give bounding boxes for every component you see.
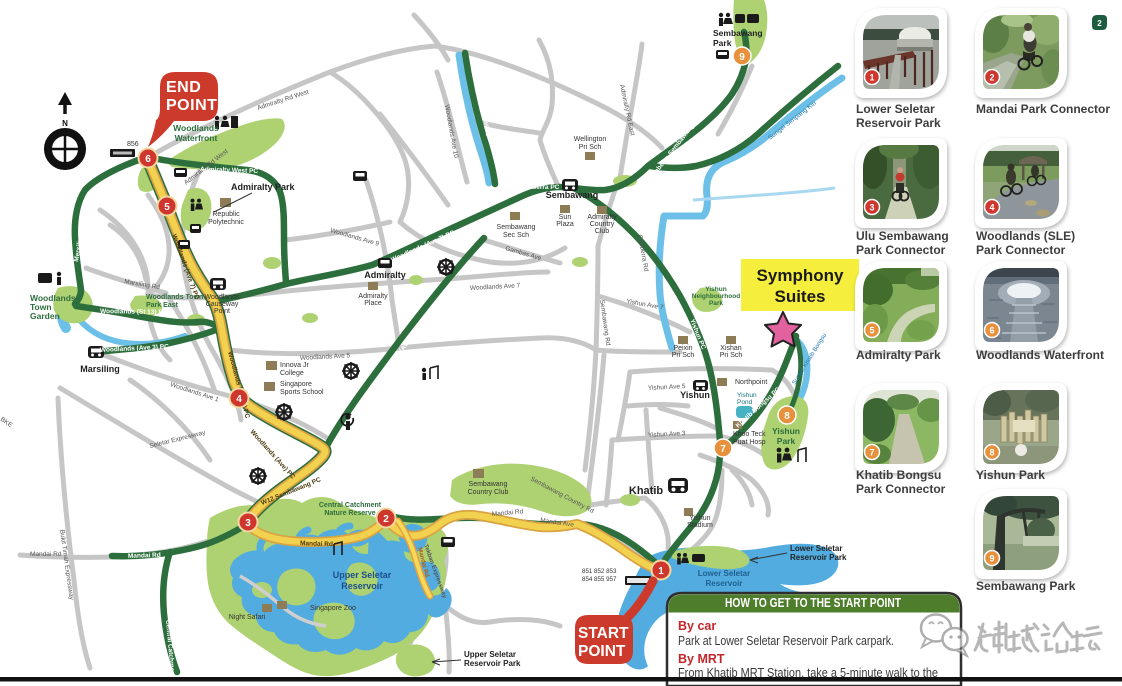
svg-text:START: START bbox=[578, 625, 629, 642]
svg-text:Woodlands: Woodlands bbox=[173, 123, 219, 133]
svg-text:Mandai Rd: Mandai Rd bbox=[128, 552, 161, 560]
svg-text:Nature Reserve: Nature Reserve bbox=[324, 510, 375, 517]
svg-text:Park Connector: Park Connector bbox=[856, 243, 946, 257]
svg-text:Woodlands (SLE): Woodlands (SLE) bbox=[976, 229, 1075, 243]
svg-text:Admiralty Park: Admiralty Park bbox=[231, 182, 296, 192]
svg-text:Admiralty: Admiralty bbox=[358, 293, 388, 300]
svg-text:Khatib: Khatib bbox=[629, 485, 664, 497]
svg-text:Reservoir Park: Reservoir Park bbox=[856, 116, 941, 130]
svg-text:Park Connector: Park Connector bbox=[856, 482, 946, 496]
svg-text:4: 4 bbox=[989, 203, 994, 213]
svg-text:Pond: Pond bbox=[737, 399, 753, 406]
svg-text:Reservoir: Reservoir bbox=[341, 581, 383, 591]
svg-text:5: 5 bbox=[164, 202, 170, 213]
svg-text:Stadium: Stadium bbox=[687, 522, 713, 529]
svg-text:Sembawang: Sembawang bbox=[497, 224, 536, 231]
svg-text:Yishun Park: Yishun Park bbox=[976, 468, 1045, 482]
svg-text:Woodlands: Woodlands bbox=[205, 294, 240, 301]
svg-text:5: 5 bbox=[869, 326, 874, 336]
svg-text:8: 8 bbox=[784, 411, 790, 422]
svg-text:4: 4 bbox=[236, 394, 242, 405]
svg-text:Sembawang: Sembawang bbox=[469, 481, 508, 488]
svg-text:END: END bbox=[166, 79, 201, 96]
svg-text:Waterfront: Waterfront bbox=[175, 133, 218, 143]
svg-text:Northpoint: Northpoint bbox=[735, 379, 767, 386]
svg-text:Mandai Rd: Mandai Rd bbox=[300, 540, 333, 548]
svg-text:Ulu Sembawang: Ulu Sembawang bbox=[856, 229, 949, 243]
svg-text:By MRT: By MRT bbox=[678, 652, 725, 666]
svg-text:Central Catchment: Central Catchment bbox=[319, 502, 382, 509]
svg-text:Garden: Garden bbox=[30, 311, 60, 321]
svg-text:851 852 853: 851 852 853 bbox=[582, 568, 617, 575]
svg-text:Sembawang: Sembawang bbox=[713, 28, 763, 38]
svg-text:9: 9 bbox=[989, 554, 994, 564]
svg-text:2: 2 bbox=[383, 514, 389, 525]
svg-text:POINT: POINT bbox=[578, 643, 626, 660]
svg-text:Reservoir Park: Reservoir Park bbox=[790, 553, 847, 562]
svg-text:Night Safari: Night Safari bbox=[229, 614, 266, 621]
svg-text:Upper Seletar: Upper Seletar bbox=[464, 650, 516, 659]
svg-text:Point: Point bbox=[214, 308, 230, 315]
svg-text:Innova Jr: Innova Jr bbox=[280, 362, 309, 369]
svg-text:POINT: POINT bbox=[166, 97, 217, 114]
svg-text:2: 2 bbox=[1097, 19, 1102, 28]
svg-text:Symphony: Symphony bbox=[757, 266, 844, 285]
svg-text:Singapore: Singapore bbox=[280, 381, 312, 388]
svg-text:3: 3 bbox=[245, 518, 251, 529]
svg-text:Republic: Republic bbox=[212, 211, 240, 218]
svg-text:Polytechnic: Polytechnic bbox=[208, 219, 244, 226]
svg-text:9: 9 bbox=[739, 52, 745, 63]
svg-text:Khatib Bongsu: Khatib Bongsu bbox=[856, 468, 941, 482]
svg-text:Reservoir Park: Reservoir Park bbox=[464, 659, 521, 668]
svg-text:Woodlands Waterfront: Woodlands Waterfront bbox=[976, 348, 1104, 362]
svg-text:1: 1 bbox=[658, 566, 664, 577]
svg-text:854 855 957: 854 855 957 bbox=[582, 576, 617, 583]
svg-text:Country: Country bbox=[590, 221, 615, 228]
svg-text:Wellington: Wellington bbox=[574, 136, 607, 143]
svg-text:Plaza: Plaza bbox=[556, 221, 574, 228]
svg-text:Lower Seletar: Lower Seletar bbox=[698, 569, 750, 578]
svg-text:7: 7 bbox=[869, 448, 874, 458]
svg-text:3: 3 bbox=[869, 203, 874, 213]
svg-text:Park: Park bbox=[777, 436, 796, 446]
svg-text:2: 2 bbox=[989, 73, 994, 83]
svg-text:Canberra PC: Canberra PC bbox=[520, 184, 560, 191]
svg-text:Sembawang: Sembawang bbox=[546, 190, 599, 200]
svg-text:6: 6 bbox=[145, 154, 151, 165]
svg-text:Woodlands (St 13) PC: Woodlands (St 13) PC bbox=[100, 308, 168, 316]
svg-text:Suites: Suites bbox=[774, 287, 825, 306]
svg-text:Yishun: Yishun bbox=[705, 286, 726, 293]
svg-text:Admiralty: Admiralty bbox=[587, 214, 617, 221]
svg-text:8: 8 bbox=[989, 448, 994, 458]
svg-text:Club: Club bbox=[595, 228, 610, 235]
svg-text:Pri Sch: Pri Sch bbox=[579, 144, 602, 151]
svg-text:Park at Lower Seletar Reservoi: Park at Lower Seletar Reservoir Park car… bbox=[678, 634, 894, 648]
svg-text:Country Club: Country Club bbox=[468, 489, 509, 496]
svg-text:856: 856 bbox=[127, 141, 139, 148]
svg-text:Puat Hosp: Puat Hosp bbox=[733, 439, 766, 446]
svg-text:Admiralty Park: Admiralty Park bbox=[856, 348, 941, 362]
svg-text:Marsiling: Marsiling bbox=[80, 364, 120, 374]
svg-text:Yishun: Yishun bbox=[737, 392, 757, 399]
svg-text:Mandai Rd: Mandai Rd bbox=[30, 551, 62, 558]
svg-text:Reservoir: Reservoir bbox=[706, 579, 743, 588]
svg-text:Xishan: Xishan bbox=[720, 345, 742, 352]
svg-text:Singapore Zoo: Singapore Zoo bbox=[310, 605, 356, 612]
svg-text:1: 1 bbox=[869, 73, 874, 83]
svg-text:6: 6 bbox=[989, 326, 994, 336]
svg-text:Admiralty: Admiralty bbox=[364, 270, 406, 280]
svg-text:N: N bbox=[62, 119, 68, 128]
svg-text:Park: Park bbox=[713, 38, 732, 48]
svg-text:Lower Seletar: Lower Seletar bbox=[790, 544, 842, 553]
svg-text:Sembawang Park: Sembawang Park bbox=[976, 579, 1076, 593]
svg-text:HOW TO GET TO THE START POINT: HOW TO GET TO THE START POINT bbox=[725, 596, 901, 610]
svg-text:Pri Sch: Pri Sch bbox=[672, 352, 695, 359]
svg-text:Sports School: Sports School bbox=[280, 389, 324, 396]
svg-text:College: College bbox=[280, 370, 304, 377]
svg-text:Yishun: Yishun bbox=[689, 515, 710, 522]
svg-text:Park Connector: Park Connector bbox=[976, 243, 1066, 257]
svg-text:Sun: Sun bbox=[559, 214, 572, 221]
svg-text:Mandai Park Connector: Mandai Park Connector bbox=[976, 102, 1110, 116]
svg-text:Yishun: Yishun bbox=[680, 390, 710, 400]
svg-text:Peixin: Peixin bbox=[673, 345, 692, 352]
svg-text:Khoo Teck: Khoo Teck bbox=[733, 431, 766, 438]
svg-text:7: 7 bbox=[720, 444, 726, 455]
svg-text:Pri Sch: Pri Sch bbox=[720, 352, 743, 359]
svg-text:Neighbourhood: Neighbourhood bbox=[692, 293, 740, 300]
svg-text:By car: By car bbox=[678, 619, 716, 633]
svg-text:Place: Place bbox=[364, 300, 382, 307]
svg-text:Causeway: Causeway bbox=[206, 301, 239, 308]
svg-text:Sec Sch: Sec Sch bbox=[503, 232, 529, 239]
svg-text:Upper Seletar: Upper Seletar bbox=[333, 570, 392, 580]
svg-text:Park: Park bbox=[709, 300, 723, 307]
svg-text:Yishun: Yishun bbox=[772, 426, 800, 436]
svg-text:Lower Seletar: Lower Seletar bbox=[856, 102, 935, 116]
